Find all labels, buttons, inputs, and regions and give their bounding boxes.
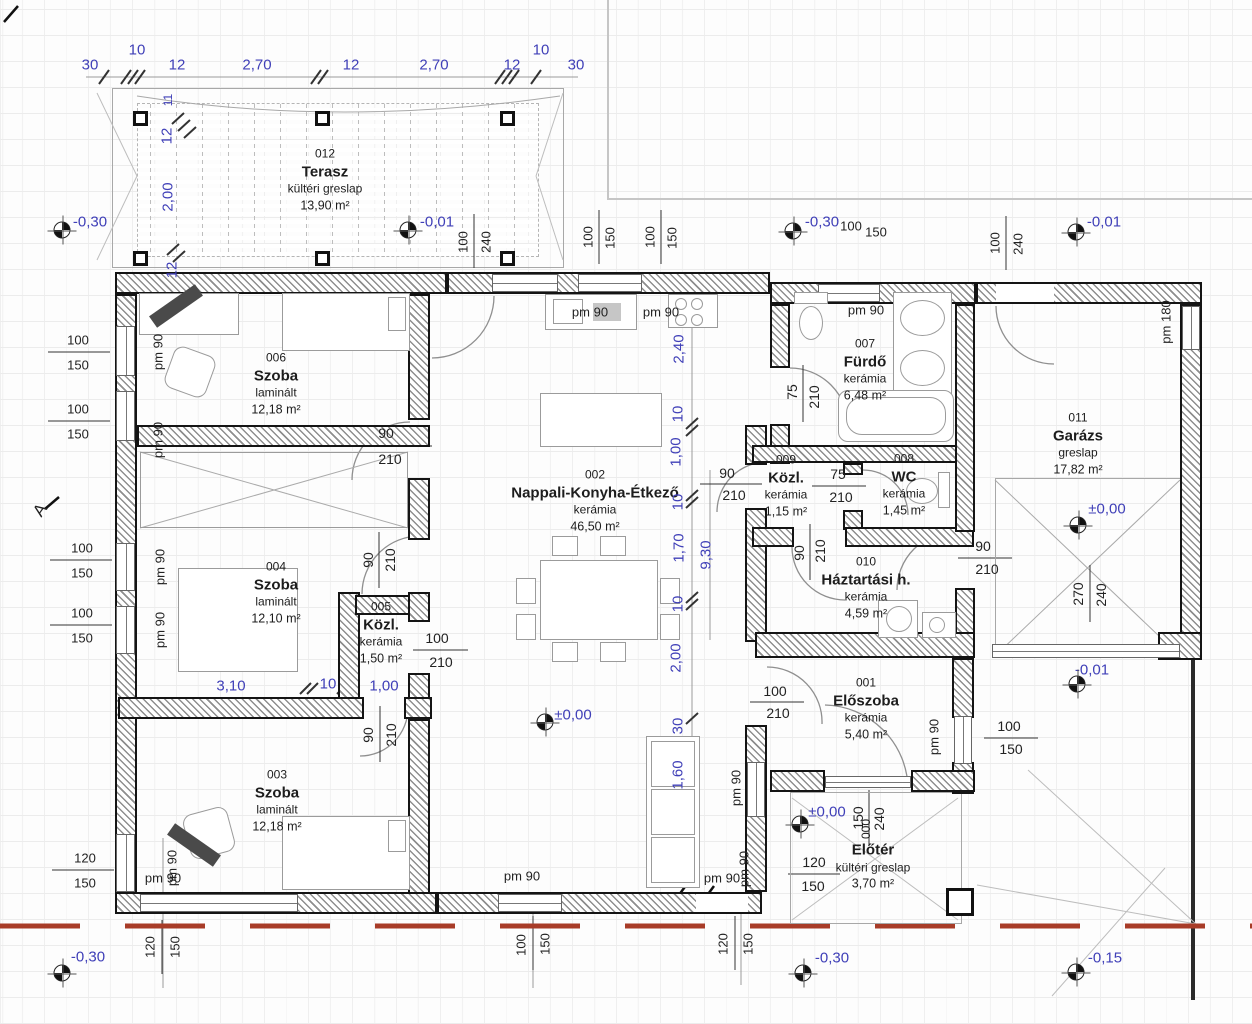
dimension-label: 150 [71,567,93,580]
elevation-label: ±0,00 [1088,502,1125,517]
dimension-label: 90 [378,426,394,440]
parapet-height-label: pm 90 [152,334,165,370]
dimension-label: 150 [801,879,824,893]
parapet-height-label: pm 90 [848,304,884,317]
elevation-marker-icon [785,223,802,240]
parapet-height-label: pm 90 [928,719,941,755]
elevation-label: -0,15 [1088,951,1122,966]
dimension-chain-label: 10 [671,406,686,423]
dimension-label: 90 [361,552,375,568]
dimension-label: 100 [989,232,1002,254]
dimension-label: 150 [604,227,617,249]
dimension-label: 100 [67,403,89,416]
dimension-label: 100 [71,542,93,555]
dimension-chain-label: 10 [671,596,686,613]
dimension-chain-label: 3,10 [216,679,245,694]
dimension-chain-label: 12 [504,58,521,73]
dimension-chain-label: 10 [129,43,146,58]
dimension-chain-label: 9,30 [699,540,714,569]
dimension-label: 240 [1012,233,1025,255]
dimension-label: 90 [719,466,735,480]
dimension-chain-label: 1,70 [672,533,687,562]
dimension-chain-label: 1,00 [369,679,398,694]
dimension-label: 100 [763,684,786,698]
dimension-label: 120 [802,855,825,869]
dimension-label: 210 [378,452,401,466]
dimension-label: 150 [169,936,182,958]
elevation-label: -0,01 [1087,215,1121,230]
dimension-label: 210 [807,385,821,408]
elevation-label: -0,30 [805,215,839,230]
dimension-label: 100 [840,220,862,233]
dimension-label: 150 [67,359,89,372]
dimension-chain-label: 2,70 [419,58,448,73]
dimension-label: 240 [872,807,886,830]
dimension-label: 150 [74,877,96,890]
dimension-chain-label: 30 [568,58,585,73]
dimension-label: 120 [74,852,96,865]
dimension-chain-label: 10 [320,677,337,692]
dimension-label: 210 [429,655,452,669]
parapet-height-label: pm 180 [1160,300,1173,343]
dimension-label: 150 [539,933,552,955]
parapet-height-label: pm 90 [704,872,740,885]
elevation-label: ±0,00 [808,805,845,820]
dimension-chain-label: 30 [671,718,686,735]
parapet-height-label: pm 90 [154,549,167,585]
dimension-label: 100 [997,719,1020,733]
dimension-chain-label: 2,00 [161,182,176,211]
dimension-label: 100 [71,607,93,620]
dimension-label: 100 [582,226,595,248]
elevation-marker-icon [54,222,71,239]
parapet-height-label: pm 90 [145,872,181,885]
dimension-chain-label: 12 [160,128,175,145]
dimension-label: 210 [813,539,827,562]
dimension-chain-label: 2,40 [672,334,687,363]
dimension-chain-label: 2,00 [669,643,684,672]
elevation-marker-icon [1068,964,1085,981]
parapet-height-label: pm 90 [643,306,679,319]
dimension-chain-label: 10 [671,494,686,511]
elevation-marker-icon [537,714,554,731]
dimension-label: 100 [67,334,89,347]
dimension-chain-label: 12 [165,262,180,279]
dimension-label: 210 [383,548,397,571]
parapet-height-label: pm 90 [572,306,608,319]
dimension-label: 75 [830,467,846,481]
dimension-label: 240 [1094,583,1108,606]
parapet-height-label: pm 90 [730,770,743,806]
dimension-label: 100 [425,631,448,645]
dimension-chain-label: 11 [162,94,174,106]
dimension-label: 120 [717,933,730,955]
dimension-chain-label: 12 [169,58,186,73]
dimension-label: 210 [766,706,789,720]
dimension-label: 100 [515,934,528,956]
dimension-label: 210 [384,723,398,746]
elevation-marker-icon [400,222,417,239]
dimension-label: 100 [457,231,470,253]
dimension-chain-label: 12 [343,58,360,73]
dimension-chain-label: 1,60 [671,760,686,789]
dimension-label: 210 [975,562,998,576]
elevation-label: -0,30 [73,215,107,230]
dimension-label: 240 [480,231,493,253]
elevation-marker-icon [792,816,809,833]
parapet-height-label: pm 90 [504,870,540,883]
dimension-label: 90 [792,545,806,561]
parapet-height-label: pm 90 [154,612,167,648]
dimension-chain-label: 10 [533,43,550,58]
annotations-layer: 3010122,70122,7012103011122,001210024010… [0,0,1252,1024]
parapet-height-label: pm 90 [152,422,165,458]
dimension-label: 150 [865,226,887,239]
dimension-label: 270 [1071,582,1085,605]
elevation-marker-icon [795,965,812,982]
dimension-label: 150 [742,933,755,955]
elevation-marker-icon [54,965,71,982]
dimension-chain-label: 30 [82,58,99,73]
dimension-label: 150 [71,632,93,645]
dimension-label: 210 [829,490,852,504]
floor-plan-canvas: 012 Terasz kültéri greslap 13,90 m² 006 … [0,0,1252,1024]
dimension-label: 150 [666,227,679,249]
dimension-label: 120 [144,936,157,958]
dimension-label: 210 [722,488,745,502]
dimension-chain-label: 1,00 [669,437,684,466]
dimension-label: 90 [361,727,375,743]
dimension-label: 150 [851,806,865,829]
elevation-marker-icon [1069,676,1086,693]
section-marker-a: A [30,500,50,519]
elevation-label: -0,30 [815,951,849,966]
dimension-label: 150 [67,428,89,441]
dimension-label: 90 [975,539,991,553]
dimension-label: 150 [999,742,1022,756]
elevation-label: ±0,00 [554,708,591,723]
dimension-chain-label: 2,70 [242,58,271,73]
elevation-marker-icon [1068,224,1085,241]
elevation-marker-icon [1070,517,1087,534]
elevation-label: -0,01 [420,215,454,230]
dimension-label: 75 [785,384,799,400]
elevation-label: -0,30 [71,950,105,965]
dimension-label: 100 [644,226,657,248]
